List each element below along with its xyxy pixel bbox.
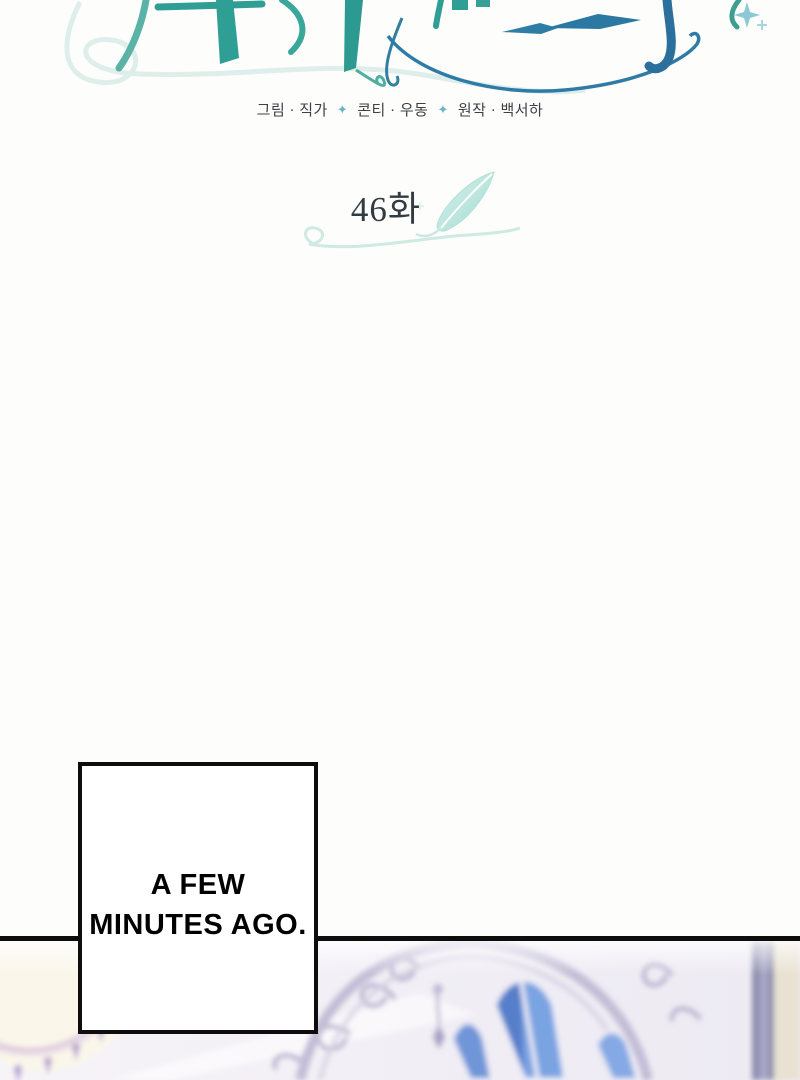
credit-original: 원작 · 백서하 <box>458 99 544 120</box>
diamond-separator-icon: ✦ <box>337 102 348 118</box>
narration-box: A FEW MINUTES AGO. <box>78 762 318 1034</box>
narration-line-1: A FEW <box>151 865 246 905</box>
narration-line-2: MINUTES AGO. <box>89 905 307 945</box>
diamond-separator-icon: ✦ <box>437 102 448 118</box>
episode-number: 46화 <box>0 181 772 232</box>
webtoon-page: { "header": { "credits": { "separator": … <box>0 0 800 1080</box>
credits-line: 그림 · 직가 ✦ 콘티 · 우동 ✦ 원작 · 백서하 <box>0 99 800 120</box>
credit-storyboard: 콘티 · 우동 <box>357 99 428 120</box>
credit-art: 그림 · 직가 <box>257 99 328 120</box>
